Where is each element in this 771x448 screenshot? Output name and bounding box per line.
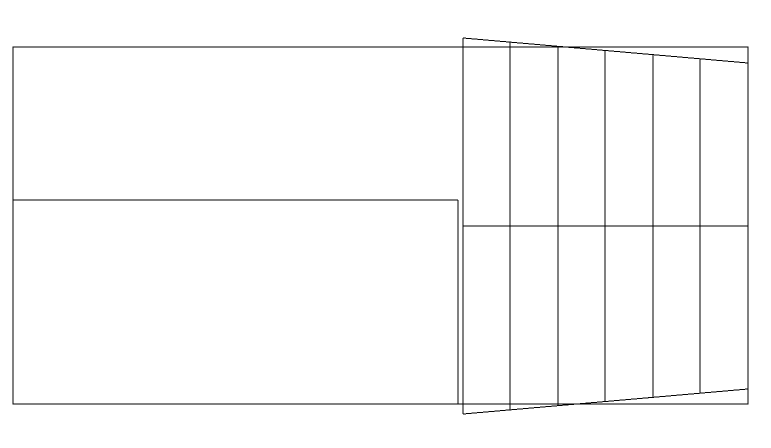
drawing-area <box>0 0 771 448</box>
line-diagram <box>0 0 771 448</box>
